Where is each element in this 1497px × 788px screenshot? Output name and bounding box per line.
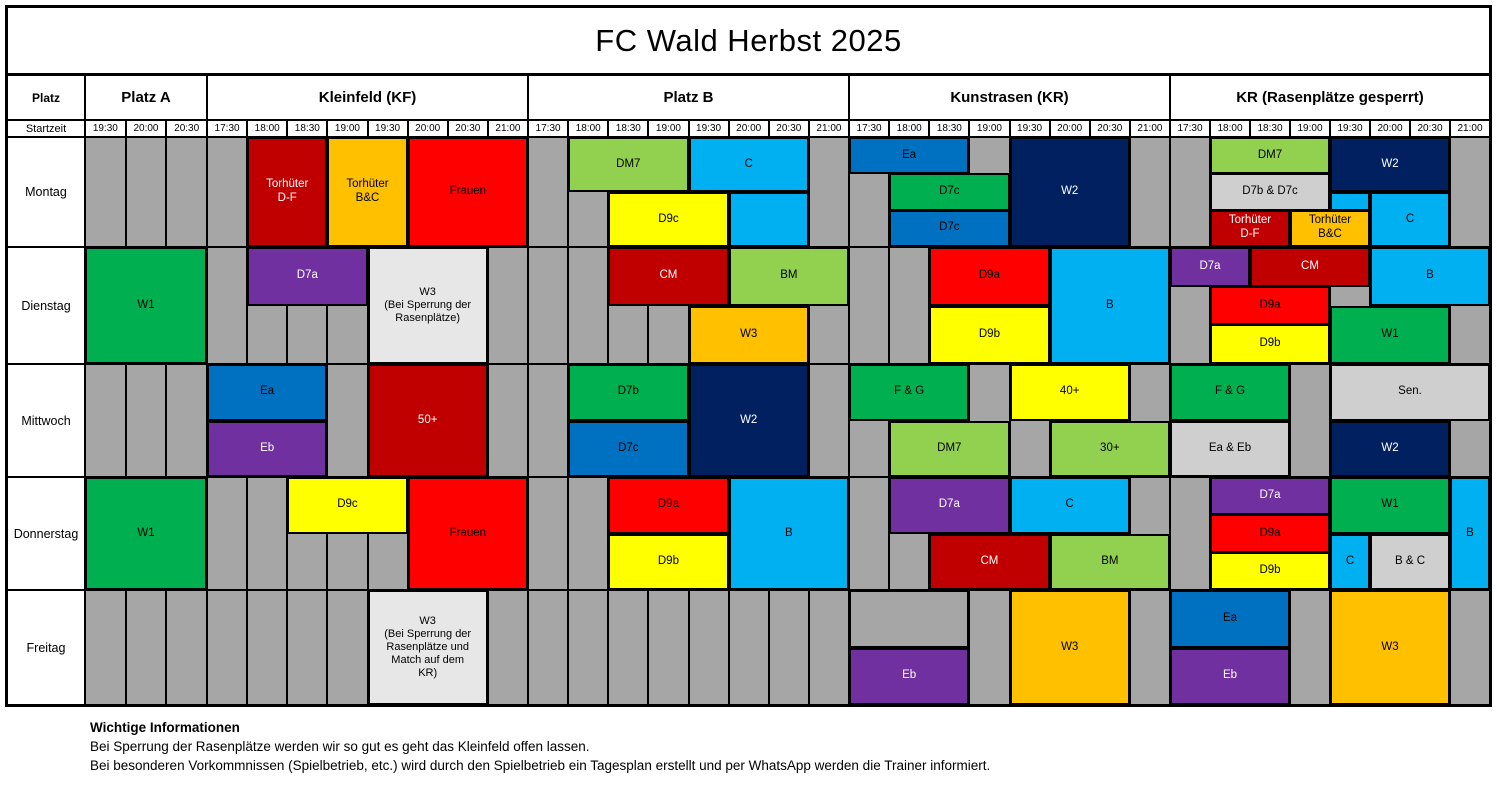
schedule-block: W1 <box>85 477 207 590</box>
empty-slot-cell <box>1451 138 1489 246</box>
time-cell: 18:00 <box>1211 121 1249 136</box>
schedule-block: D7b <box>568 364 688 421</box>
schedule-block: D9b <box>608 534 728 591</box>
schedule-block: Ea <box>207 364 327 421</box>
time-cell: 18:30 <box>930 121 968 136</box>
empty-slot-cell <box>328 365 366 476</box>
time-cell: 21:00 <box>1131 121 1169 136</box>
schedule-block: D9c <box>608 192 728 247</box>
time-cell: 20:00 <box>1051 121 1089 136</box>
time-cell: 19:00 <box>328 121 366 136</box>
section-header: KR (Rasenplätze gesperrt) <box>1171 76 1489 119</box>
empty-slot-cell <box>1131 138 1169 246</box>
empty-slot-cell <box>1291 591 1329 704</box>
schedule-block: D9b <box>929 306 1049 365</box>
schedule-block: Torhüter D-F <box>1210 210 1290 247</box>
empty-slot-cell <box>529 365 567 476</box>
schedule-block: D7a <box>1210 477 1330 515</box>
empty-slot-cell <box>208 591 246 704</box>
schedule-block: D7a <box>889 477 1009 534</box>
day-label: Dienstag <box>8 248 84 363</box>
time-cell: 18:30 <box>609 121 647 136</box>
empty-slot-cell <box>1451 591 1489 704</box>
schedule-block <box>729 192 809 247</box>
schedule-block: D9a <box>1210 514 1330 552</box>
schedule-block: Sen. <box>1330 364 1490 421</box>
day-label: Freitag <box>8 591 84 704</box>
time-cell: 21:00 <box>1451 121 1489 136</box>
schedule-block: B <box>729 477 849 590</box>
empty-slot-cell <box>609 591 647 704</box>
time-cell: 18:00 <box>890 121 928 136</box>
schedule-block: D9a <box>608 477 728 534</box>
empty-slot-cell <box>730 591 768 704</box>
empty-slot-cell <box>248 591 286 704</box>
empty-slot-cell <box>127 138 166 246</box>
empty-slot-cell <box>86 591 125 704</box>
schedule-block: D9b <box>1210 324 1330 364</box>
platz-header: Platz <box>8 76 84 119</box>
empty-slot-cell <box>529 478 567 589</box>
empty-slot-cell <box>167 591 206 704</box>
schedule-block: D7c <box>568 421 688 478</box>
time-cell: 20:30 <box>449 121 487 136</box>
schedule-block: W2 <box>1010 137 1130 247</box>
empty-slot-cell <box>127 591 166 704</box>
footer-line-1: Bei Sperrung der Rasenplätze werden wir … <box>90 737 990 756</box>
schedule-block: D7c <box>889 210 1009 247</box>
schedule-block: B <box>1370 247 1490 306</box>
time-cell: 18:00 <box>248 121 286 136</box>
schedule-block: C <box>1010 477 1130 534</box>
empty-slot-cell <box>569 478 607 589</box>
empty-slot-cell <box>1291 365 1329 476</box>
schedule-block: Torhüter B&C <box>327 137 407 247</box>
schedule-block: D9c <box>287 477 407 534</box>
empty-slot-cell <box>850 248 888 363</box>
footer-line-2: Bei besonderen Vorkommnissen (Spielbetri… <box>90 756 990 775</box>
schedule-block: W3 <box>1330 590 1450 705</box>
empty-slot-cell <box>167 138 206 246</box>
schedule-block: DM7 <box>1210 137 1330 174</box>
schedule-block: Ea <box>849 137 969 174</box>
time-cell: 18:30 <box>1251 121 1289 136</box>
time-cell: 18:30 <box>288 121 326 136</box>
schedule-block: D7a <box>247 247 367 306</box>
day-label: Montag <box>8 138 84 246</box>
schedule-block: Eb <box>1170 648 1290 706</box>
schedule-block: CM <box>1250 247 1370 287</box>
schedule-block: Ea & Eb <box>1170 421 1290 478</box>
empty-slot-cell <box>649 591 687 704</box>
empty-slot-cell <box>890 248 928 363</box>
time-cell: 20:00 <box>409 121 447 136</box>
schedule-block: W2 <box>1330 137 1450 192</box>
section-header: Kunstrasen (KR) <box>850 76 1169 119</box>
empty-slot-cell <box>810 591 848 704</box>
schedule-block: B <box>1450 477 1490 590</box>
schedule-block: DM7 <box>568 137 688 192</box>
schedule-block: W1 <box>1330 477 1450 534</box>
schedule-block: F & G <box>1170 364 1290 421</box>
schedule-block: 30+ <box>1050 421 1170 478</box>
time-cell: 21:00 <box>810 121 848 136</box>
empty-slot-cell <box>810 365 848 476</box>
empty-slot-cell <box>569 591 607 704</box>
time-cell: 20:30 <box>770 121 808 136</box>
time-cell: 19:30 <box>1011 121 1049 136</box>
schedule-block: C <box>1370 192 1450 247</box>
empty-slot-cell <box>569 248 607 363</box>
footer-heading: Wichtige Informationen <box>90 718 990 737</box>
time-cell: 17:30 <box>1171 121 1209 136</box>
time-cell: 17:30 <box>850 121 888 136</box>
day-label: Mittwoch <box>8 365 84 476</box>
schedule-block: BM <box>1050 534 1170 591</box>
time-cell: 19:30 <box>1331 121 1369 136</box>
schedule-block: 40+ <box>1010 364 1130 421</box>
schedule-block: C <box>1330 534 1370 591</box>
time-cell: 19:00 <box>970 121 1008 136</box>
empty-slot-cell <box>489 365 527 476</box>
schedule-block: W1 <box>85 247 207 364</box>
page-title: FC Wald Herbst 2025 <box>8 8 1489 73</box>
schedule-block: Torhüter B&C <box>1290 210 1370 247</box>
footer-notes: Wichtige Informationen Bei Sperrung der … <box>90 718 990 775</box>
schedule-block: D7a <box>1170 247 1250 287</box>
empty-slot-cell <box>529 248 567 363</box>
time-cell: 19:00 <box>1291 121 1329 136</box>
schedule-block: D7b & D7c <box>1210 173 1330 210</box>
empty-slot-cell <box>1171 138 1209 246</box>
time-cell: 20:30 <box>1411 121 1449 136</box>
schedule-block: W1 <box>1330 306 1450 365</box>
schedule-block: CM <box>608 247 728 306</box>
time-cell: 19:00 <box>649 121 687 136</box>
empty-slot-cell <box>328 591 366 704</box>
schedule-block: W3 (Bei Sperrung der Rasenplätze und Mat… <box>368 590 488 705</box>
time-cell: 18:00 <box>569 121 607 136</box>
empty-slot-cell <box>810 138 848 246</box>
section-header: Kleinfeld (KF) <box>208 76 527 119</box>
empty-slot-cell <box>1171 478 1209 589</box>
schedule-block: D9a <box>1210 286 1330 326</box>
schedule-page: FC Wald Herbst 2025 PlatzStartzeitPlatz … <box>0 0 1497 788</box>
schedule-block: BM <box>729 247 849 306</box>
time-cell: 20:00 <box>1371 121 1409 136</box>
schedule-block: W2 <box>689 364 809 477</box>
empty-slot-cell <box>770 591 808 704</box>
empty-slot-cell <box>288 591 326 704</box>
schedule-block: Eb <box>849 648 969 706</box>
day-label: Donnerstag <box>8 478 84 589</box>
empty-slot-cell <box>167 365 206 476</box>
schedule-block: W3 <box>689 306 809 365</box>
time-cell: 21:00 <box>489 121 527 136</box>
schedule-block: D9a <box>929 247 1049 306</box>
empty-slot-cell <box>690 591 728 704</box>
schedule-block: B & C <box>1370 534 1450 591</box>
schedule-block: Frauen <box>408 137 528 247</box>
time-cell: 20:30 <box>167 121 206 136</box>
section-header: Platz B <box>529 76 848 119</box>
schedule-block: B <box>1050 247 1170 364</box>
time-cell: 17:30 <box>208 121 246 136</box>
schedule-block: D7c <box>889 173 1009 210</box>
schedule-block: Torhüter D-F <box>247 137 327 247</box>
schedule-block: C <box>689 137 809 192</box>
empty-slot-cell <box>850 478 888 589</box>
time-cell: 19:30 <box>690 121 728 136</box>
time-cell: 20:00 <box>730 121 768 136</box>
time-cell: 20:00 <box>127 121 166 136</box>
empty-slot-cell <box>208 478 246 589</box>
schedule-block: Ea <box>1170 590 1290 648</box>
empty-slot-cell <box>86 138 125 246</box>
schedule-block <box>1330 192 1370 211</box>
startzeit-header: Startzeit <box>8 121 84 136</box>
time-cell: 17:30 <box>529 121 567 136</box>
empty-slot-cell <box>529 591 567 704</box>
empty-slot-cell <box>970 591 1008 704</box>
schedule-block: W2 <box>1330 421 1450 478</box>
empty-slot-cell <box>86 365 125 476</box>
schedule-block: D9b <box>1210 552 1330 590</box>
empty-slot-cell <box>529 138 567 246</box>
empty-slot-cell <box>489 248 527 363</box>
schedule-block: W3 (Bei Sperrung der Rasenplätze) <box>368 247 488 364</box>
schedule-block: W3 <box>1010 590 1130 705</box>
schedule-block: Eb <box>207 421 327 478</box>
empty-slot-cell <box>208 138 246 246</box>
time-cell: 19:30 <box>86 121 125 136</box>
schedule-block: DM7 <box>889 421 1009 478</box>
schedule-block <box>849 590 969 648</box>
empty-slot-cell <box>208 248 246 363</box>
empty-slot-cell <box>248 478 286 589</box>
schedule-block: 50+ <box>368 364 488 477</box>
section-header: Platz A <box>86 76 206 119</box>
empty-slot-cell <box>127 365 166 476</box>
time-cell: 20:30 <box>1091 121 1129 136</box>
schedule-block: CM <box>929 534 1049 591</box>
schedule-block: F & G <box>849 364 969 421</box>
empty-slot-cell <box>489 591 527 704</box>
schedule-block: Frauen <box>408 477 528 590</box>
time-cell: 19:30 <box>369 121 407 136</box>
empty-slot-cell <box>1131 591 1169 704</box>
schedule-table: FC Wald Herbst 2025 PlatzStartzeitPlatz … <box>7 7 1490 705</box>
